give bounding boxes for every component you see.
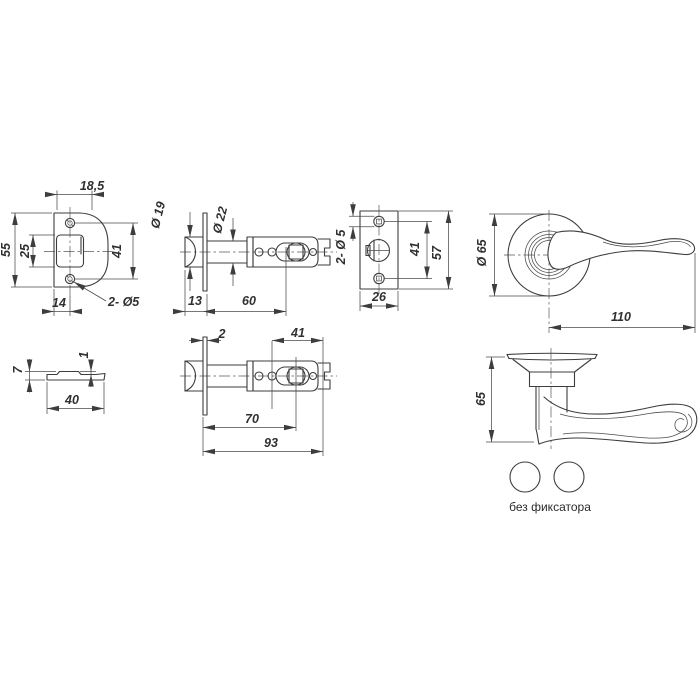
strike-plate-side-view: 7 1 40 xyxy=(11,351,105,414)
dim-thickness: 7 xyxy=(11,359,56,393)
handle-front-view: Ø 65 110 xyxy=(475,210,695,333)
dim-label-26: 26 xyxy=(371,290,387,304)
dim-cutout-height: 25 xyxy=(18,235,55,267)
dim-label-40: 40 xyxy=(64,393,79,407)
dim-label-18-5: 18,5 xyxy=(80,179,105,193)
dim-screw-spacing: 41 xyxy=(385,222,433,279)
dim-label-d19: Ø 19 xyxy=(148,200,168,230)
dim-label-41: 41 xyxy=(408,242,422,257)
dim-label-70: 70 xyxy=(245,412,259,426)
dim-label-41: 41 xyxy=(290,326,305,340)
latch-top-view: Ø 19 Ø 22 13 60 xyxy=(148,200,337,316)
technical-drawing-page: 18,5 55 25 41 14 2- Ø5 xyxy=(0,0,700,700)
dim-label-d65: Ø 65 xyxy=(475,238,489,266)
dim-label-7: 7 xyxy=(11,365,25,373)
dim-label-13: 13 xyxy=(188,294,202,308)
latch-side-view: 2 41 70 93 xyxy=(180,326,337,456)
dim-label-60: 60 xyxy=(242,294,256,308)
knob-circle-left xyxy=(510,462,540,492)
dim-label-93: 93 xyxy=(264,436,278,450)
rose-side-profile xyxy=(507,353,597,386)
dim-label-d22: Ø 22 xyxy=(210,205,230,235)
faceplate-front-view: 2- Ø 5 41 57 26 xyxy=(334,202,453,311)
lever-front xyxy=(548,231,695,269)
fixation-variant: без фиксатора xyxy=(509,462,591,514)
dim-top-width: 18,5 xyxy=(45,179,105,210)
dim-label-110: 110 xyxy=(611,310,631,324)
dim-label-14: 14 xyxy=(52,296,66,310)
dim-backset: 70 xyxy=(203,357,296,456)
dim-label-55: 55 xyxy=(0,242,13,257)
dim-case-diameter: Ø 22 xyxy=(210,205,233,286)
dim-label-65: 65 xyxy=(474,391,488,406)
dim-label-25: 25 xyxy=(18,243,32,259)
lever-scroll-detail xyxy=(675,414,692,432)
dim-label-57: 57 xyxy=(430,245,444,260)
dim-label-2-d5: 2- Ø5 xyxy=(107,295,140,309)
dim-width: 40 xyxy=(47,382,104,414)
dim-height: 65 xyxy=(474,357,534,442)
knob-circle-right xyxy=(554,462,584,492)
dim-bottom-offset: 14 xyxy=(42,289,82,316)
handle-neck-side xyxy=(536,387,567,445)
dim-label-2: 2 xyxy=(218,327,226,341)
dim-width: 26 xyxy=(360,290,398,311)
handle-side-view: 65 xyxy=(474,348,697,449)
dim-bolt-diameter: Ø 19 xyxy=(148,200,190,291)
dim-label-1: 1 xyxy=(77,351,91,358)
lever-side xyxy=(539,397,697,444)
latch-bolt-face xyxy=(366,240,390,262)
dim-label-2-d5: 2- Ø 5 xyxy=(334,229,348,266)
dim-total-length: 93 xyxy=(203,436,323,452)
strike-plate-profile xyxy=(47,372,105,381)
strike-plate-front-view: 18,5 55 25 41 14 2- Ø5 xyxy=(0,179,140,316)
dim-lip-height: 1 xyxy=(77,351,96,387)
fixation-label: без фиксатора xyxy=(509,500,591,514)
drawing-canvas: 18,5 55 25 41 14 2- Ø5 xyxy=(0,0,700,700)
dim-label-41: 41 xyxy=(110,244,124,259)
